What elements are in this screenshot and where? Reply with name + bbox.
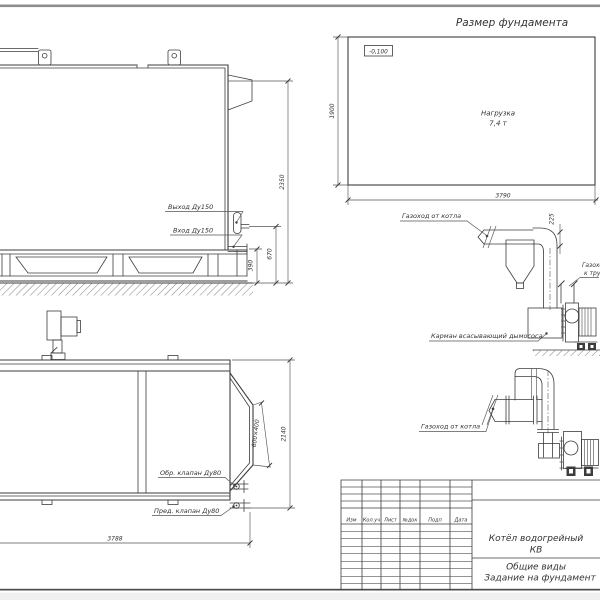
elbow <box>533 228 557 252</box>
safety-valve-label: Пред. клапан Ду80 <box>154 507 219 515</box>
from-boiler-label: Газоход от котла <box>402 212 461 220</box>
fan-flange <box>560 437 564 470</box>
from-boiler-callout: Газоход от котла <box>400 212 488 237</box>
dim-duct: 225 <box>549 213 556 225</box>
lifting-lug <box>168 50 181 65</box>
engineering-drawing: 2350 670 390 Выход Ду150 Вход Ду150 Разм… <box>0 0 600 600</box>
product-name-line2: КВ <box>530 546 543 556</box>
product-name-line1: Котёл водогрейный <box>489 534 584 544</box>
elevation-mark: -0,100 <box>365 46 393 57</box>
title-col-list: Лист <box>383 518 398 524</box>
dim-inlet-height: 390 <box>248 260 255 272</box>
to-chimney-callout: Газоход к трубе <box>569 262 600 286</box>
riser-duct <box>538 370 560 458</box>
sheet-top-edge <box>0 5 600 8</box>
outlet-pipe-callout: Выход Ду150 <box>165 203 243 224</box>
title-col-ndok: №док <box>402 518 418 524</box>
to-chimney-label-line1: Газоход <box>582 262 600 269</box>
foundation-outline <box>348 37 595 185</box>
title-block: Изм Кол.уч Лист №док Подп Дата Котёл вод… <box>341 480 600 590</box>
title-col-koluch: Кол.уч <box>363 518 380 524</box>
drawing-sheet: 2350 670 390 Выход Ду150 Вход Ду150 Разм… <box>0 0 600 600</box>
dim-flue-opening: 600×400 <box>251 419 261 448</box>
doc-type-line1: Общие виды <box>506 563 566 573</box>
dim-plan-length: 3788 <box>107 536 122 543</box>
dim-total-height: 2350 <box>279 174 286 189</box>
flue-outlet-stub <box>228 75 252 110</box>
outlet-pipe-label: Выход Ду150 <box>168 203 213 211</box>
fan-flange <box>561 305 565 341</box>
dim-foundation-width: 3790 <box>495 193 510 200</box>
inlet-pipe <box>228 244 247 254</box>
chimney-stub <box>558 281 578 304</box>
title-col-izm: Изм <box>346 518 356 524</box>
dim-foundation-height: 1900 <box>329 103 336 118</box>
foundation-plan: Размер фундамента -0,100 Нагрузка 7,4 т … <box>329 17 599 205</box>
dim-outlet-height: 670 <box>267 248 274 260</box>
lifting-lug <box>39 50 52 65</box>
boiler-side-view: 2350 670 390 Выход Ду150 Вход Ду150 <box>0 49 293 296</box>
elevation-mark-value: -0,100 <box>369 50 388 56</box>
cyclone <box>506 240 534 289</box>
burner-assembly <box>47 311 81 360</box>
check-valve-label: Обр. клапан Ду80 <box>160 469 221 477</box>
ground-hatch <box>0 284 253 296</box>
dim-plan-width: 2140 <box>281 426 288 441</box>
plan-view-dimensions: 2140 3788 600×400 <box>0 358 295 549</box>
smoke-exhauster-fan <box>564 432 599 477</box>
load-label-line2: 7,4 т <box>489 120 507 128</box>
suction-pocket-label: Карман всасывающий дымососа <box>431 332 543 340</box>
smoke-exhauster-fan <box>565 303 597 350</box>
inlet-pipe-callout: Вход Ду150 <box>170 227 242 249</box>
side-view-dimensions: 2350 670 390 <box>228 79 293 286</box>
foundation-dimensions: 1900 3790 <box>329 35 599 206</box>
flanged-duct <box>482 395 542 425</box>
safety-valve-callout: Пред. клапан Ду80 <box>152 505 235 515</box>
doc-type-line2: Задание на фундамент <box>484 574 596 584</box>
boiler-plan-view: 2140 3788 600×400 Обр. клапан Ду80 Пред.… <box>0 311 295 548</box>
inlet-pipe-label: Вход Ду150 <box>173 227 213 235</box>
sheet-bottom-edge <box>0 589 600 591</box>
ground-hatch <box>533 351 600 357</box>
support-frame <box>0 250 247 281</box>
suction-pocket-callout: Карман всасывающий дымососа <box>429 332 548 341</box>
title-col-data: Дата <box>454 518 468 524</box>
sheet-below-area <box>0 593 600 600</box>
from-boiler-callout: Газоход от котла <box>419 408 494 432</box>
check-valve-callout: Обр. клапан Ду80 <box>158 469 236 487</box>
flue-plan-view: Газоход от котла <box>419 369 599 477</box>
to-chimney-label-line2: к трубе <box>584 270 600 277</box>
flue-elevation-view: Газоход от котла <box>400 212 600 356</box>
from-boiler-label: Газоход от котла <box>421 423 480 431</box>
title-col-podp: Подп <box>428 518 442 524</box>
load-label-line1: Нагрузка <box>481 110 515 118</box>
duct-dimension: 225 <box>549 213 563 254</box>
foundation-title: Размер фундамента <box>456 17 568 29</box>
